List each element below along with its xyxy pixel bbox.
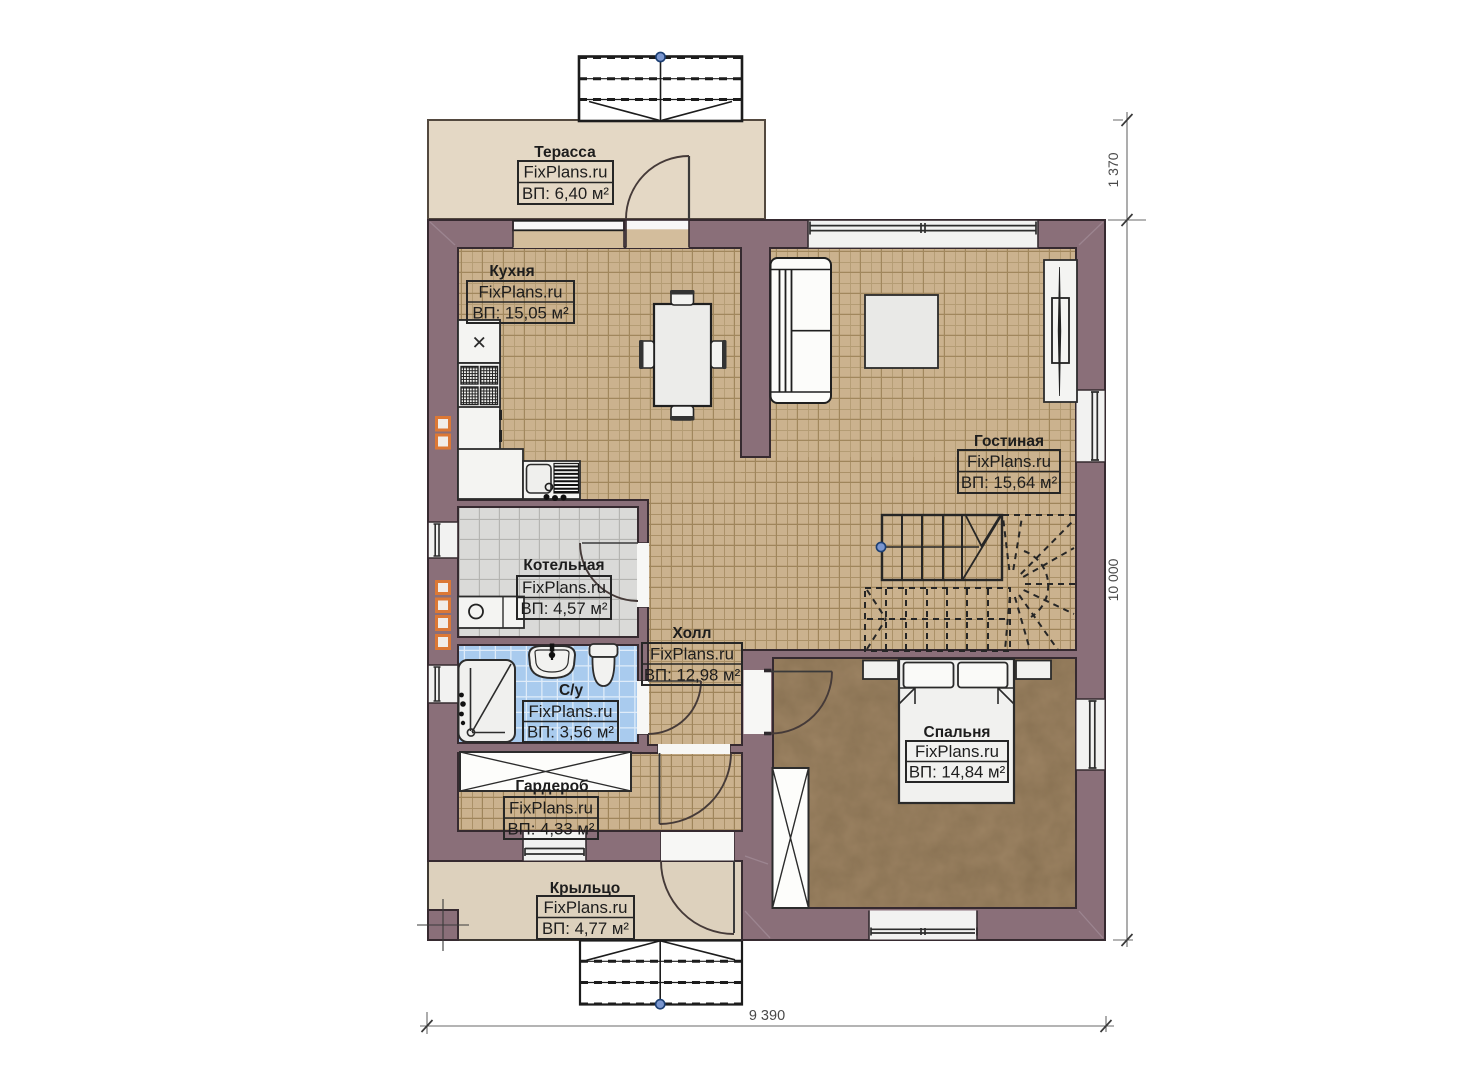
- svg-text:ВП: 15,64 м²: ВП: 15,64 м²: [961, 473, 1058, 492]
- svg-text:Крыльцо: Крыльцо: [550, 880, 621, 897]
- svg-text:ВП: 6,40 м²: ВП: 6,40 м²: [522, 184, 609, 203]
- svg-text:FixPlans.ru: FixPlans.ru: [529, 702, 613, 721]
- svg-text:ВП: 4,77 м²: ВП: 4,77 м²: [542, 919, 629, 938]
- svg-text:FixPlans.ru: FixPlans.ru: [544, 898, 628, 917]
- svg-text:FixPlans.ru: FixPlans.ru: [509, 799, 593, 818]
- svg-text:Гардероб: Гардероб: [515, 778, 588, 795]
- svg-text:10 000: 10 000: [1105, 558, 1121, 601]
- svg-text:9 390: 9 390: [749, 1008, 785, 1024]
- svg-text:ВП: 12,98 м²: ВП: 12,98 м²: [644, 666, 741, 685]
- svg-text:ВП: 4,57 м²: ВП: 4,57 м²: [520, 599, 607, 618]
- svg-text:1 370: 1 370: [1105, 152, 1121, 187]
- svg-text:Спальня: Спальня: [924, 724, 991, 741]
- svg-text:ВП: 15,05 м²: ВП: 15,05 м²: [472, 304, 569, 323]
- svg-text:Терасса: Терасса: [534, 144, 596, 161]
- svg-text:ВП: 4,33 м²: ВП: 4,33 м²: [507, 820, 594, 839]
- svg-text:Холл: Холл: [673, 625, 712, 642]
- svg-text:Кухня: Кухня: [489, 263, 534, 280]
- svg-text:ВП: 3,56 м²: ВП: 3,56 м²: [527, 723, 614, 742]
- svg-text:FixPlans.ru: FixPlans.ru: [522, 578, 606, 597]
- svg-text:Гостиная: Гостиная: [974, 433, 1044, 450]
- svg-text:FixPlans.ru: FixPlans.ru: [524, 163, 608, 182]
- svg-text:С/у: С/у: [559, 682, 584, 699]
- svg-text:FixPlans.ru: FixPlans.ru: [967, 452, 1051, 471]
- svg-text:FixPlans.ru: FixPlans.ru: [479, 283, 563, 302]
- svg-text:FixPlans.ru: FixPlans.ru: [915, 742, 999, 761]
- svg-text:Котельная: Котельная: [523, 557, 604, 574]
- svg-text:FixPlans.ru: FixPlans.ru: [650, 645, 734, 664]
- svg-text:ВП: 14,84 м²: ВП: 14,84 м²: [909, 763, 1006, 782]
